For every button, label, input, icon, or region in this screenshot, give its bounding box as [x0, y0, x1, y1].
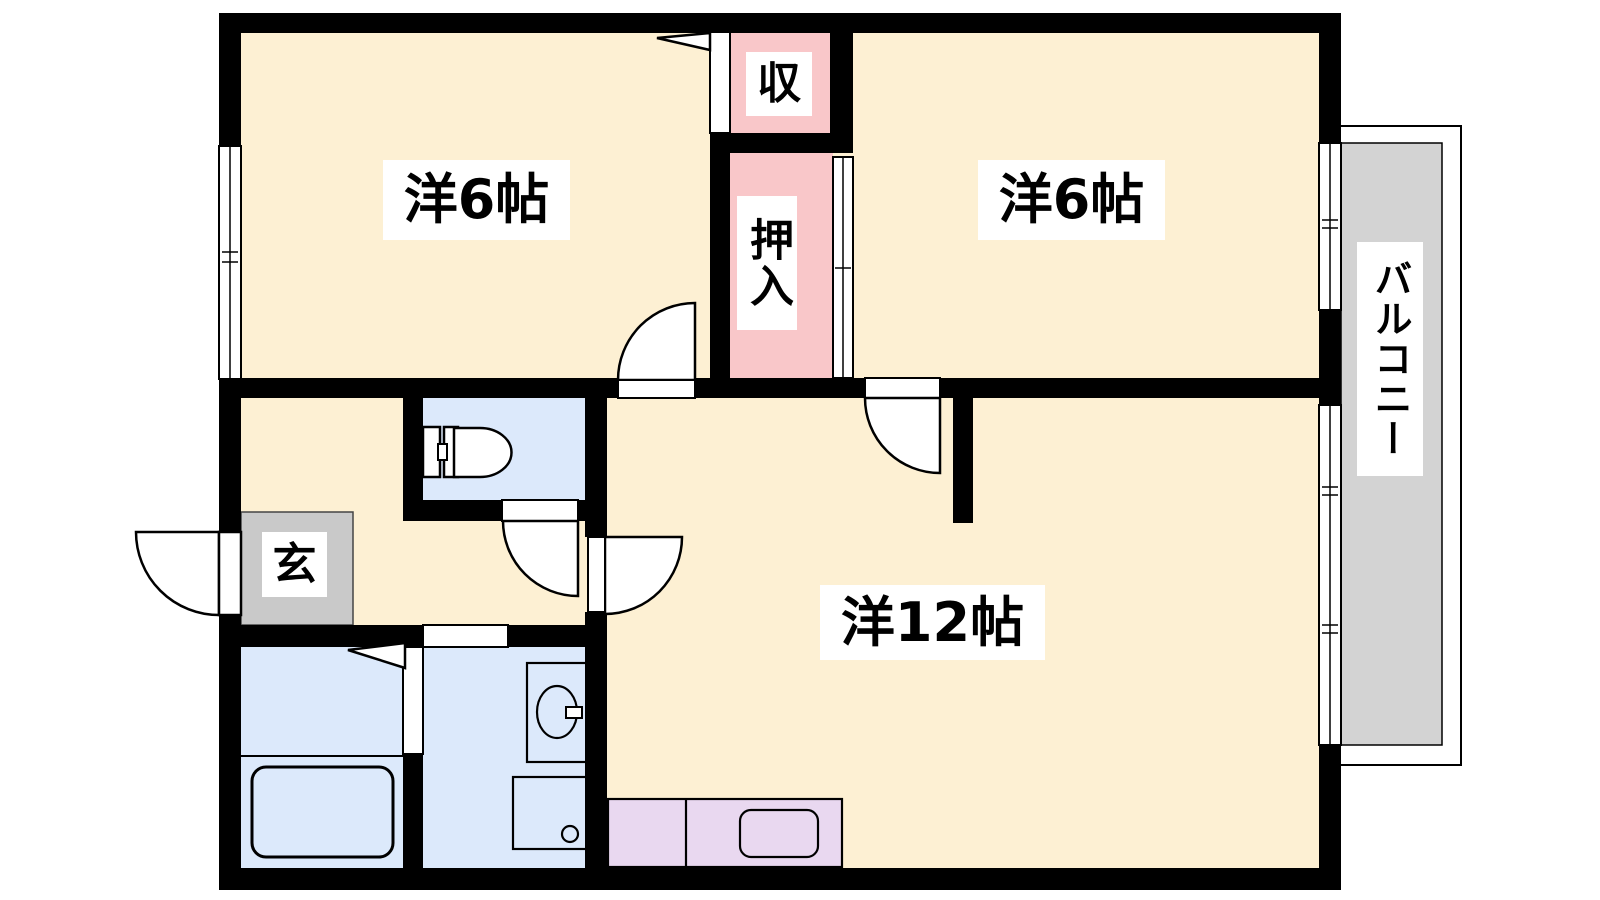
label-living: 洋12帖: [820, 585, 1045, 660]
label-bedroom-right: 洋6帖: [978, 160, 1165, 240]
washroom-floor: [423, 645, 585, 868]
wall-mid-c: [853, 378, 865, 398]
label-balcony: バルコニー: [1357, 242, 1423, 476]
wall-mid-b: [695, 378, 853, 398]
wall-stub-living: [953, 398, 973, 523]
wall-hall-east-lower: [585, 612, 607, 868]
label-entrance: 玄: [262, 532, 327, 597]
label-closet: 押入: [737, 196, 797, 330]
window-living: [1319, 405, 1341, 745]
window-bedroom-left: [219, 146, 241, 379]
wall-outer-top: [219, 13, 1341, 33]
wall-mid-a: [241, 378, 618, 398]
wall-toilet-south-a: [403, 500, 502, 521]
washroom-opening: [423, 625, 508, 647]
toilet-fixture: [423, 427, 512, 477]
kitchen-counter: [608, 799, 842, 867]
label-storage: 収: [746, 52, 812, 116]
wall-outer-left: [219, 13, 241, 890]
wall-outer-bottom: [219, 868, 1341, 890]
wall-bath-east: [403, 755, 423, 868]
wall-closet-west: [710, 153, 730, 378]
wall-storage-east: [830, 32, 853, 153]
window-bedroom-right: [1319, 143, 1341, 310]
floor-plan: 洋6帖 洋6帖 洋12帖 収 押入 玄 バルコニー: [0, 0, 1600, 900]
entrance-door: [136, 532, 241, 615]
wall-wetarea-north-b: [508, 625, 607, 647]
label-bedroom-left: 洋6帖: [383, 160, 570, 240]
wall-mid-d: [940, 378, 1319, 398]
closet-sliding-door: [833, 157, 853, 378]
wall-toilet-south-b: [578, 500, 607, 521]
